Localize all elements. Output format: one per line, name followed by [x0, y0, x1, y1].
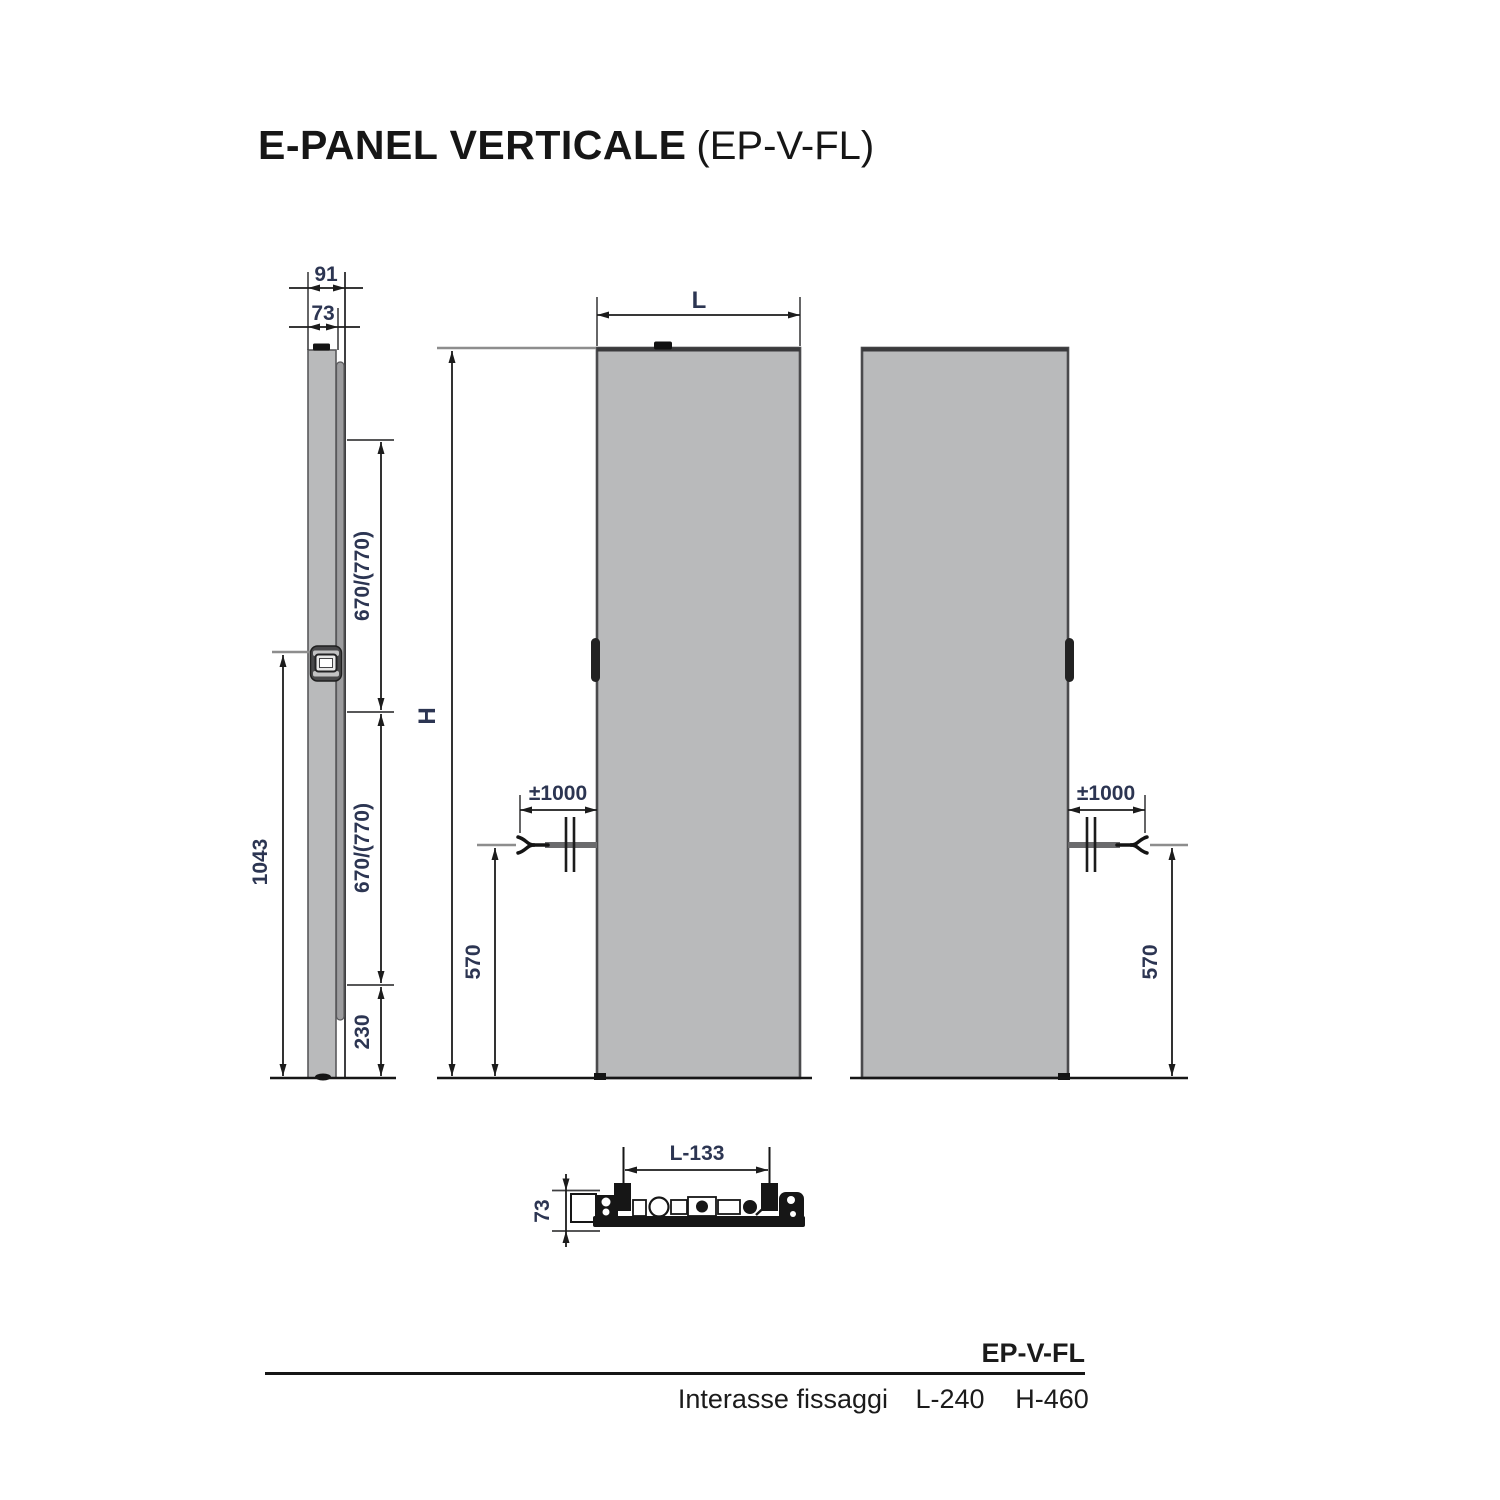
dim-label-91: 91 [314, 263, 338, 286]
dim-cable-length: ±1000 [1068, 782, 1145, 833]
dim-label-570: 570 [462, 944, 485, 979]
dim-label-73-section: 73 [531, 1199, 554, 1222]
section-end-box [571, 1194, 596, 1222]
right-end-cap [779, 1192, 804, 1225]
rear-side-notch [1065, 638, 1074, 682]
top-view-assembly [571, 1183, 805, 1227]
dim-label-L: L [692, 287, 707, 314]
dim-cable-height: 570 [1139, 845, 1188, 1076]
dim-label-570: 570 [1139, 944, 1162, 979]
side-rear-strip [337, 362, 345, 1020]
dim-fixing-spans: 670/(770) 670/(770) 230 [347, 440, 394, 1076]
spec-l-value: L-240 [912, 1384, 988, 1415]
rear-view: ±1000 570 [850, 348, 1188, 1080]
dim-bracket-height: 1043 [249, 652, 310, 1076]
dim-width-L: L [597, 287, 800, 346]
dim-label-L133: L-133 [670, 1142, 725, 1165]
dim-label-1000: ±1000 [1077, 782, 1135, 805]
technical-drawing: 91 73 1043 670/(770) 670/(770) 230 [0, 0, 1500, 1500]
dim-label-670-upper: 670/(770) [351, 531, 374, 621]
left-bolt-block [614, 1183, 631, 1211]
power-plug-icon [1117, 837, 1147, 853]
connector-box [718, 1200, 740, 1214]
dim-depth-body: 73 [289, 302, 360, 327]
side-view: 91 73 1043 670/(770) 670/(770) 230 [249, 263, 396, 1081]
dim-cable-length: ±1000 [520, 782, 597, 833]
front-side-notch [591, 638, 600, 682]
dim-label-670-lower: 670/(770) [351, 803, 374, 893]
cable-gland [743, 1200, 757, 1214]
right-bolt-block [761, 1183, 778, 1211]
rear-panel-face [862, 348, 1068, 1078]
power-cable [518, 817, 597, 872]
wall-bracket-icon [311, 646, 342, 681]
front-view: L H ±1000 [414, 287, 812, 1080]
spec-rule [265, 1372, 1085, 1375]
spec-h-value: H-460 [1012, 1384, 1092, 1415]
dim-label-230: 230 [351, 1014, 374, 1049]
dim-cable-height: 570 [462, 845, 516, 1076]
connector-box [671, 1200, 687, 1214]
spec-row-label: Interasse fissaggi [590, 1384, 888, 1415]
dim-depth-total: 91 [289, 263, 363, 288]
connector-box [633, 1200, 646, 1216]
central-gland-core [696, 1201, 708, 1213]
valve-circle [650, 1198, 669, 1217]
side-panel-body [308, 350, 336, 1078]
dim-label-1043: 1043 [249, 839, 272, 886]
section-bottom-bar [593, 1216, 805, 1227]
dim-label-H: H [414, 707, 441, 724]
spec-model: EP-V-FL [960, 1338, 1085, 1369]
power-cable [1068, 817, 1147, 872]
dim-fixing-span: L-133 [625, 1142, 768, 1170]
dim-label-1000: ±1000 [529, 782, 587, 805]
dim-height-H: H [414, 348, 596, 1076]
front-top-cap [654, 342, 672, 350]
front-panel-face [597, 348, 800, 1078]
dim-label-73: 73 [311, 302, 334, 325]
side-top-cap [313, 344, 330, 351]
power-plug-icon [518, 837, 548, 853]
top-view: L-133 73 [531, 1142, 805, 1247]
